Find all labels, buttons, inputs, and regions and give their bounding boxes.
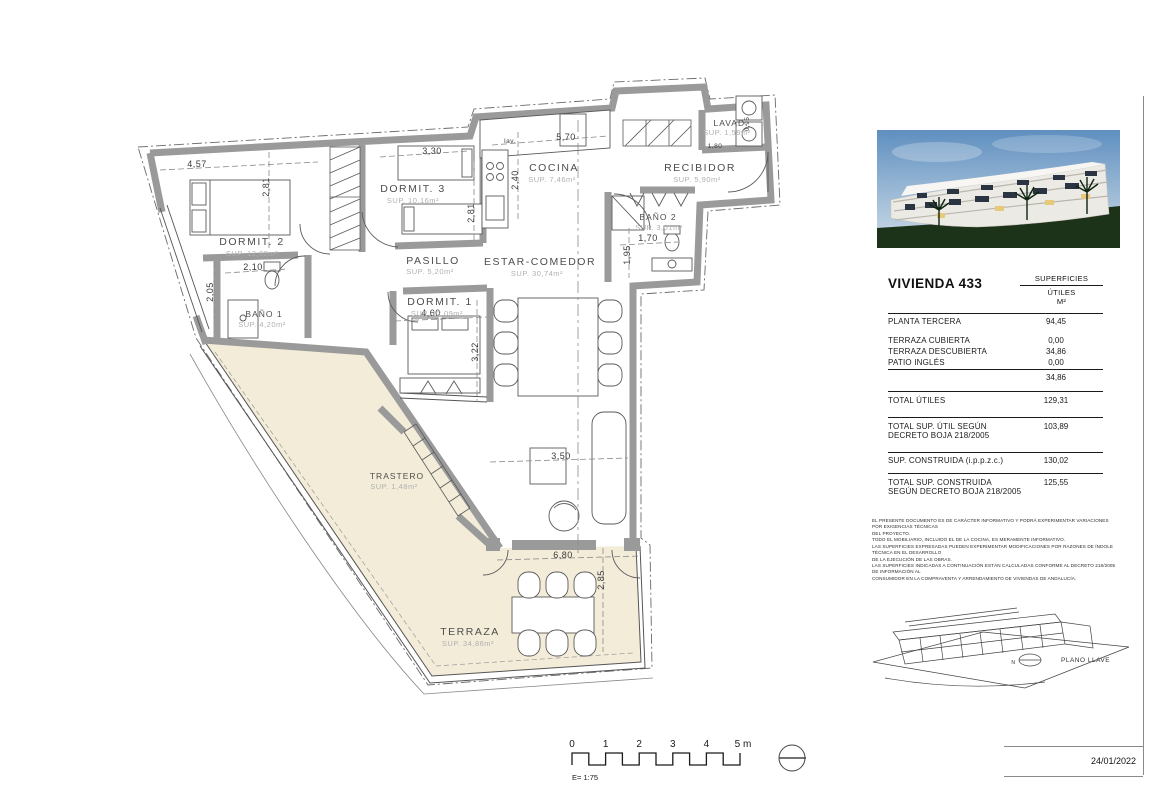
svg-text:SUP. 5,20m²: SUP. 5,20m² (406, 267, 453, 276)
dim-label: 3,22 (470, 342, 480, 362)
room-label-dormit-3: DORMIT. 3 (380, 183, 445, 195)
dim-label: 1,95 (622, 245, 632, 265)
north-indicator-icon (779, 745, 806, 771)
room-label-bano-1: BAÑO 1 (245, 309, 282, 319)
dim-label: 6,80 (553, 550, 573, 560)
svg-text:SUP. 10,16m²: SUP. 10,16m² (387, 196, 439, 205)
dim-label: 3,30 (422, 146, 442, 156)
disclaimer-text: EL PRESENTE DOCUMENTO ES DE CARÁCTER INF… (872, 518, 1120, 582)
dim-label: 1,70 (638, 233, 658, 243)
col-header-m2: M² (1020, 297, 1103, 306)
scale-bar: 0 1 2 3 4 5 m E= 1:75 (569, 739, 751, 782)
room-label-lavadero: LAVAD. (714, 118, 749, 128)
dim-label: 3,50 (551, 451, 571, 461)
sheet-frame-line (1143, 96, 1144, 775)
total-label: SUP. CONSTRUIDA (i.p.p.z.c.) (888, 456, 1023, 465)
date-label: 24/01/2022 (1091, 756, 1136, 766)
key-plan: N PLANO LLAVE (865, 592, 1135, 702)
room-label-estar-comedor: ESTAR-COMEDOR (484, 256, 596, 268)
svg-text:SUP. 12,09m²: SUP. 12,09m² (411, 309, 463, 318)
svg-text:3: 3 (670, 739, 676, 750)
total-value: 130,02 (1025, 456, 1087, 465)
total-value: 103,89 (1025, 422, 1087, 431)
col-header-utiles: ÚTILES (1020, 288, 1103, 297)
table-row-value: 34,86 (1025, 347, 1087, 356)
plan-sheet: 4,57 2,81 3,30 2,81 2,40 5,70 lav. 1,80 … (0, 0, 1170, 785)
room-label-trastero: TRASTERO (370, 471, 424, 481)
room-label-bano-2: BAÑO 2 (639, 212, 676, 222)
svg-text:5 m: 5 m (735, 739, 752, 750)
room-label-cocina: COCINA (529, 162, 579, 174)
svg-text:SUP. 4,20m²: SUP. 4,20m² (238, 320, 285, 329)
table-row-label: TERRAZA DESCUBIERTA (888, 347, 1023, 356)
col-header-superficies: SUPERFICIES (1020, 274, 1103, 283)
dim-label: 2,05 (205, 282, 215, 302)
table-row-value: 0,00 (1025, 336, 1087, 345)
total-label: TOTAL SUP. CONSTRUIDA SEGÚN DECRETO BOJA… (888, 478, 1023, 496)
unit-title: VIVIENDA 433 (888, 276, 982, 291)
surfaces-table: VIVIENDA 433 SUPERFICIES ÚTILES M² PLANT… (888, 272, 1103, 510)
room-label-recibidor: RECIBIDOR (664, 162, 736, 174)
svg-text:SUP. 1,59m²: SUP. 1,59m² (703, 128, 750, 137)
table-row-label: PLANTA TERCERA (888, 317, 1023, 326)
svg-text:SUP. 7,46m²: SUP. 7,46m² (528, 175, 575, 184)
dim-label: 2,81 (466, 203, 476, 223)
svg-text:SUP. 12,62m²: SUP. 12,62m² (226, 249, 278, 258)
dim-label: 2,40 (510, 170, 520, 190)
svg-text:0: 0 (569, 739, 575, 750)
total-value: 129,31 (1025, 396, 1087, 405)
total-label: TOTAL SUP. ÚTIL SEGÚN DECRETO BOJA 218/2… (888, 422, 1023, 440)
subtotal-value: 34,86 (1025, 373, 1087, 382)
dim-label: 5,70 (556, 132, 576, 142)
date-cell: 24/01/2022 (1004, 746, 1143, 777)
svg-text:SUP. 1,48m²: SUP. 1,48m² (370, 482, 417, 491)
table-row-label: PATIO INGLÉS (888, 358, 1023, 367)
total-value: 125,55 (1025, 478, 1087, 487)
svg-text:SUP. 5,90m²: SUP. 5,90m² (673, 175, 720, 184)
dim-label: 2,10 (243, 262, 263, 272)
svg-text:4: 4 (704, 739, 710, 750)
table-row-value: 0,00 (1025, 358, 1087, 367)
svg-text:2: 2 (636, 739, 642, 750)
north-label: N (1011, 660, 1015, 666)
keyplan-label: PLANO LLAVE (1061, 657, 1110, 664)
room-label-dormit-1: DORMIT. 1 (407, 296, 472, 308)
table-row-label: TERRAZA CUBIERTA (888, 336, 1023, 345)
room-label-dormit-2: DORMIT. 2 (219, 236, 284, 248)
svg-text:SUP. 30,74m²: SUP. 30,74m² (511, 269, 563, 278)
dim-label: lav. (504, 138, 516, 145)
room-label-terraza: TERRAZA (440, 626, 500, 638)
svg-text:SUP. 3,01m²: SUP. 3,01m² (635, 223, 682, 232)
total-label: TOTAL ÚTILES (888, 396, 1023, 405)
svg-text:SUP. 34,86m²: SUP. 34,86m² (442, 639, 494, 648)
dim-label: 2,85 (596, 570, 606, 590)
scale-ratio-label: E= 1:75 (572, 773, 598, 782)
dim-label: 2,81 (261, 177, 271, 197)
dim-label: 1,80 (708, 143, 723, 150)
dim-label: 4,57 (187, 159, 207, 169)
svg-text:1: 1 (603, 739, 609, 750)
building-photo (877, 130, 1120, 248)
table-row-value: 94,45 (1025, 317, 1087, 326)
room-label-pasillo: PASILLO (406, 255, 460, 267)
